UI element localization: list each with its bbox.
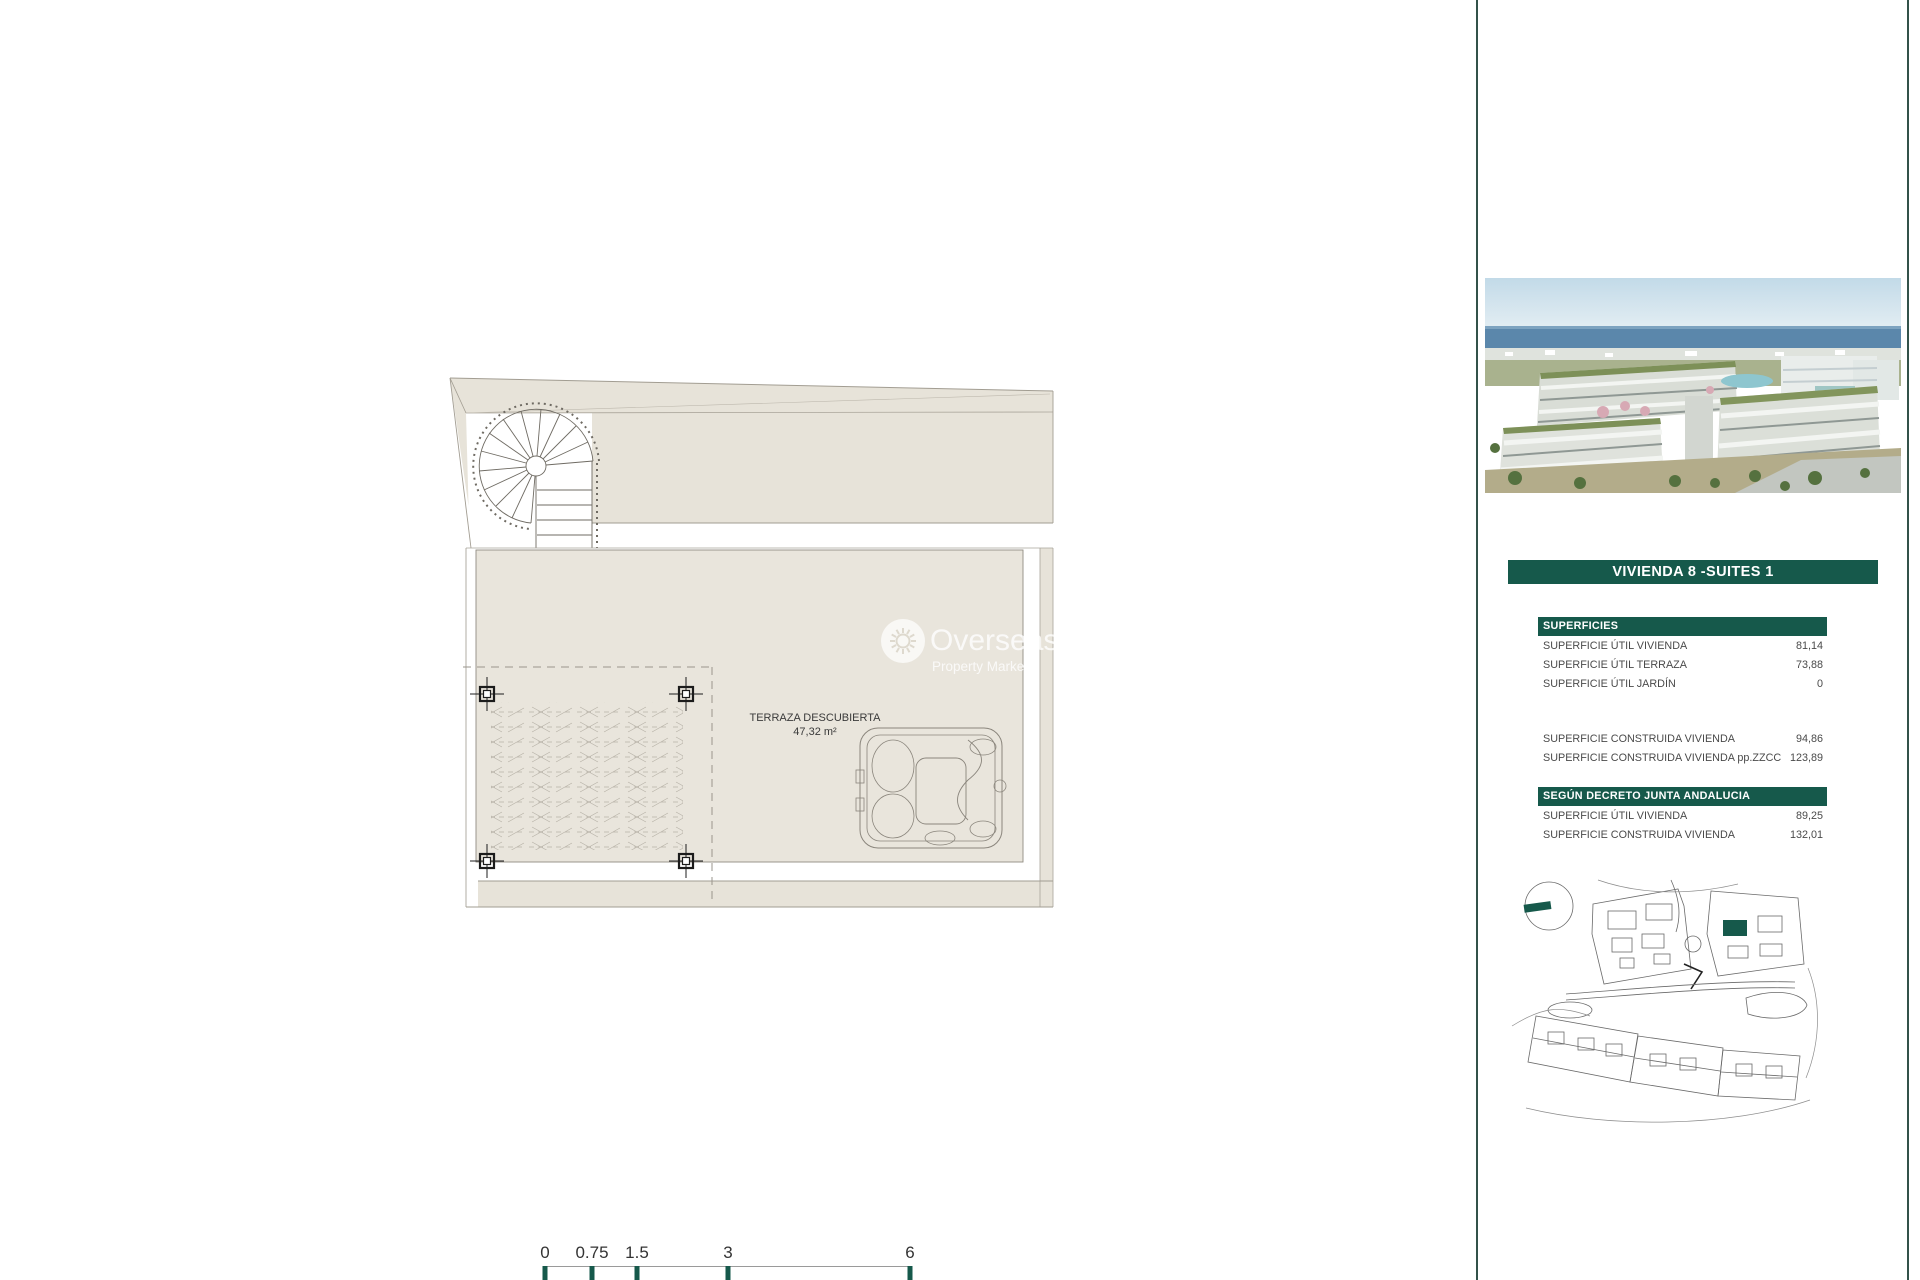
- scale-label-6: 6: [905, 1243, 914, 1262]
- unit-title-bar: VIVIENDA 8 -SUITES 1: [1508, 560, 1878, 584]
- row-value: 132,01: [1790, 829, 1823, 841]
- decreto-header: SEGÚN DECRETO JUNTA ANDALUCIA: [1538, 787, 1827, 806]
- watermark-line1: Overseas: [930, 624, 1058, 657]
- building-block-b: [1707, 891, 1804, 976]
- row-label: SUPERFICIE CONSTRUIDA VIVIENDA: [1543, 829, 1735, 841]
- row-label: SUPERFICIE ÚTIL VIVIENDA: [1543, 640, 1687, 652]
- row-label: SUPERFICIE CONSTRUIDA VIVIENDA pp.ZZCC: [1543, 752, 1781, 764]
- building-row-c: [1528, 1016, 1638, 1082]
- scale-label-0: 0: [540, 1243, 549, 1262]
- site-plan: [1508, 876, 1830, 1132]
- superficies-header: SUPERFICIES: [1538, 617, 1827, 636]
- roof-band: [450, 378, 1053, 548]
- scale-label-3: 3: [723, 1243, 732, 1262]
- row-label: SUPERFICIE ÚTIL VIVIENDA: [1543, 810, 1687, 822]
- row-value: 89,25: [1796, 810, 1823, 822]
- building-row-d: [1630, 1036, 1723, 1096]
- legend-unit-marker: [1524, 901, 1552, 913]
- row-value: 123,89: [1790, 752, 1823, 764]
- row-value: 73,88: [1796, 659, 1823, 671]
- scale-label-075: 0.75: [575, 1243, 608, 1262]
- development-photo: [1485, 278, 1901, 493]
- unit-title: VIVIENDA 8 -SUITES 1: [1612, 564, 1773, 580]
- terrace-area: 47,32 m²: [793, 726, 837, 738]
- sidebar-left-divider: [1476, 0, 1478, 1280]
- row-value: 0: [1817, 678, 1823, 690]
- floor-plan: TERRAZA DESCUBIERTA 47,32 m² Overseas Pr…: [440, 370, 1120, 1280]
- row-value: 94,86: [1796, 733, 1823, 745]
- scale-label-15: 1.5: [625, 1243, 649, 1262]
- pergola: [463, 667, 712, 905]
- table-row: SUPERFICIE CONSTRUIDA VIVIENDA 94,86: [1538, 729, 1827, 748]
- surface-tables: SUPERFICIES SUPERFICIE ÚTIL VIVIENDA 81,…: [1538, 617, 1827, 844]
- row-label: SUPERFICIE CONSTRUIDA VIVIENDA: [1543, 733, 1735, 745]
- table-row: SUPERFICIE CONSTRUIDA VIVIENDA pp.ZZCC 1…: [1538, 748, 1827, 767]
- table-row: SUPERFICIE CONSTRUIDA VIVIENDA 132,01: [1538, 825, 1827, 844]
- sun-icon: [881, 619, 925, 663]
- table-row: SUPERFICIE ÚTIL VIVIENDA 81,14: [1538, 636, 1827, 655]
- row-label: SUPERFICIE ÚTIL TERRAZA: [1543, 659, 1687, 671]
- table-row: SUPERFICIE ÚTIL JARDÍN 0: [1538, 674, 1827, 693]
- scale-bar: 0 0.75 1.5 3 6: [540, 1243, 914, 1280]
- table-row: SUPERFICIE ÚTIL VIVIENDA 89,25: [1538, 806, 1827, 825]
- watermark-line2: Property Market: [932, 659, 1028, 674]
- table-row: SUPERFICIE ÚTIL TERRAZA 73,88: [1538, 655, 1827, 674]
- sidebar-right-divider: [1907, 0, 1909, 1280]
- pergola-slats: [491, 702, 683, 850]
- row-label: SUPERFICIE ÚTIL JARDÍN: [1543, 678, 1676, 690]
- terrace-name: TERRAZA DESCUBIERTA: [749, 712, 881, 724]
- building-block-a: [1592, 889, 1691, 984]
- building-row-e: [1718, 1050, 1800, 1100]
- highlighted-unit: [1723, 920, 1747, 936]
- row-value: 81,14: [1796, 640, 1823, 652]
